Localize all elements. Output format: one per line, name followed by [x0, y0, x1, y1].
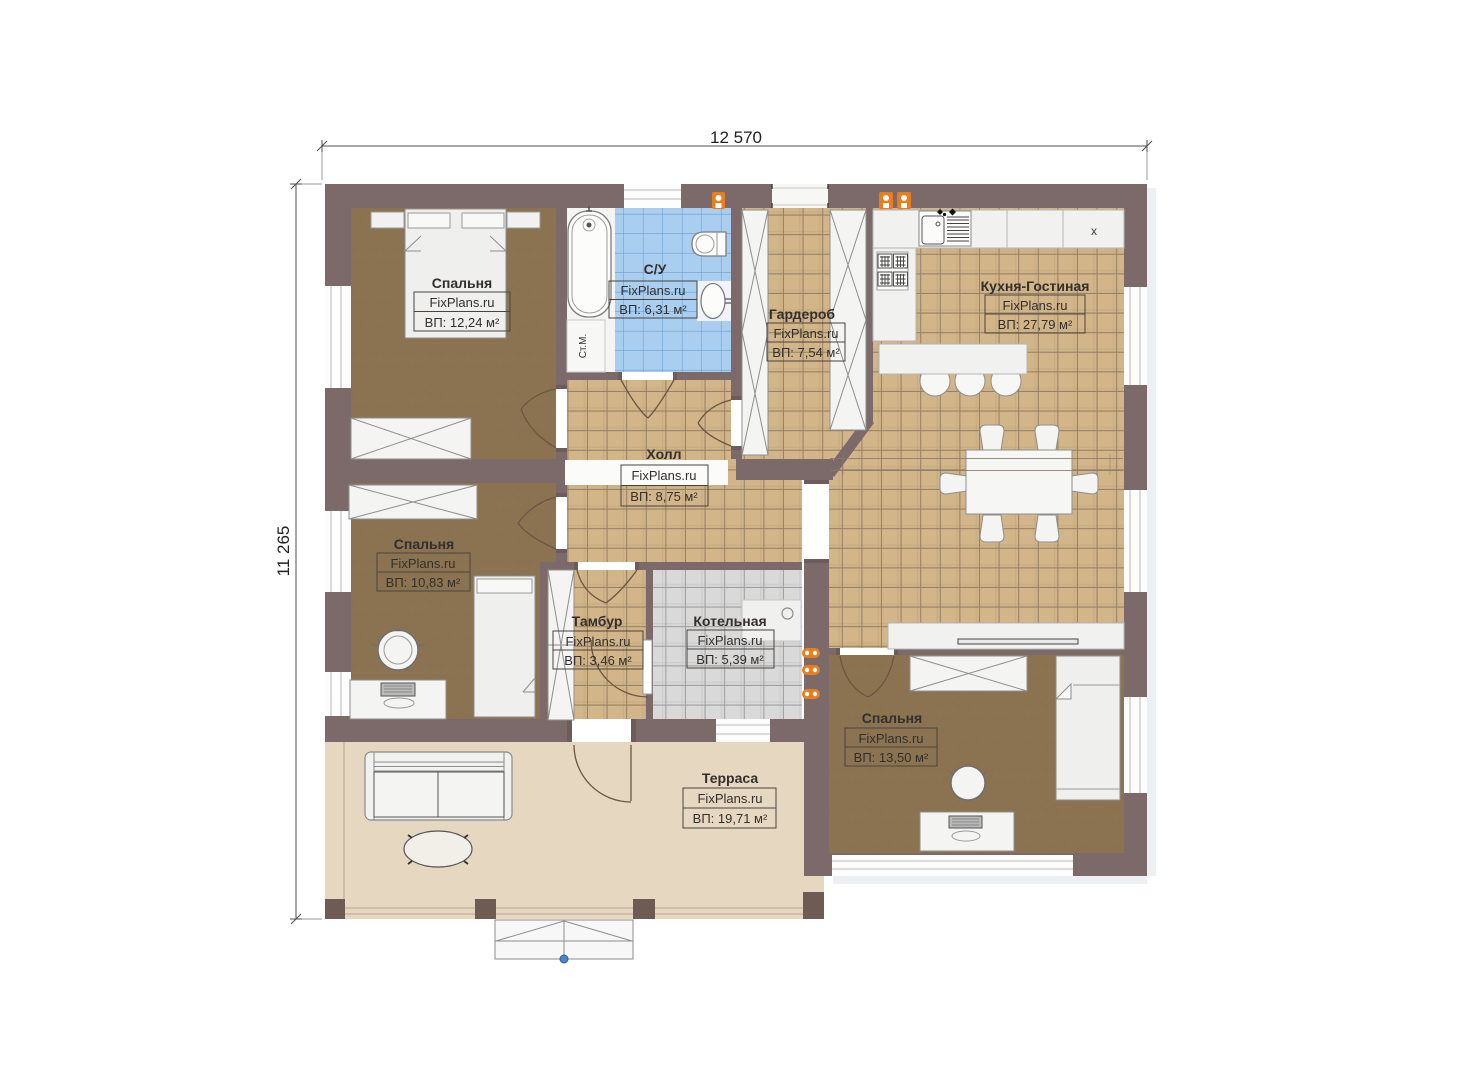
svg-text:ВП: 8,75 м²: ВП: 8,75 м²: [630, 489, 698, 504]
svg-text:Спальня: Спальня: [432, 275, 492, 291]
svg-text:Терраса: Терраса: [702, 770, 758, 786]
svg-text:ВП: 6,31 м²: ВП: 6,31 м²: [619, 302, 687, 317]
svg-text:FixPlans.ru: FixPlans.ru: [620, 283, 685, 298]
svg-text:FixPlans.ru: FixPlans.ru: [1002, 298, 1067, 313]
svg-text:Тамбур: Тамбур: [572, 613, 623, 629]
svg-text:Котельная: Котельная: [693, 613, 766, 629]
svg-text:FixPlans.ru: FixPlans.ru: [429, 295, 494, 310]
svg-text:ВП: 3,46 м²: ВП: 3,46 м²: [564, 653, 632, 668]
svg-text:FixPlans.ru: FixPlans.ru: [565, 634, 630, 649]
svg-text:Холл: Холл: [646, 446, 681, 462]
svg-text:ВП: 13,50 м²: ВП: 13,50 м²: [854, 750, 929, 765]
svg-text:FixPlans.ru: FixPlans.ru: [390, 556, 455, 571]
svg-text:FixPlans.ru: FixPlans.ru: [858, 731, 923, 746]
svg-text:ВП: 12,24 м²: ВП: 12,24 м²: [425, 315, 500, 330]
svg-text:12 570: 12 570: [710, 128, 762, 147]
svg-text:Спальня: Спальня: [862, 710, 922, 726]
svg-text:С/У: С/У: [644, 261, 667, 277]
svg-text:ВП: 5,39 м²: ВП: 5,39 м²: [696, 652, 764, 667]
svg-text:Спальня: Спальня: [394, 536, 454, 552]
svg-text:ВП: 7,54 м²: ВП: 7,54 м²: [772, 345, 840, 360]
svg-text:FixPlans.ru: FixPlans.ru: [697, 633, 762, 648]
svg-text:x: x: [1091, 224, 1097, 238]
svg-text:ВП: 19,71 м²: ВП: 19,71 м²: [693, 811, 768, 826]
svg-text:FixPlans.ru: FixPlans.ru: [631, 468, 696, 483]
svg-text:Гардероб: Гардероб: [769, 306, 836, 322]
svg-text:Кухня-Гостиная: Кухня-Гостиная: [981, 278, 1090, 294]
svg-text:ВП: 10,83 м²: ВП: 10,83 м²: [386, 575, 461, 590]
svg-text:Ст.М.: Ст.М.: [578, 334, 589, 359]
svg-text:11 265: 11 265: [274, 526, 293, 577]
svg-text:FixPlans.ru: FixPlans.ru: [773, 326, 838, 341]
svg-text:FixPlans.ru: FixPlans.ru: [697, 791, 762, 806]
svg-text:ВП: 27,79 м²: ВП: 27,79 м²: [998, 317, 1073, 332]
